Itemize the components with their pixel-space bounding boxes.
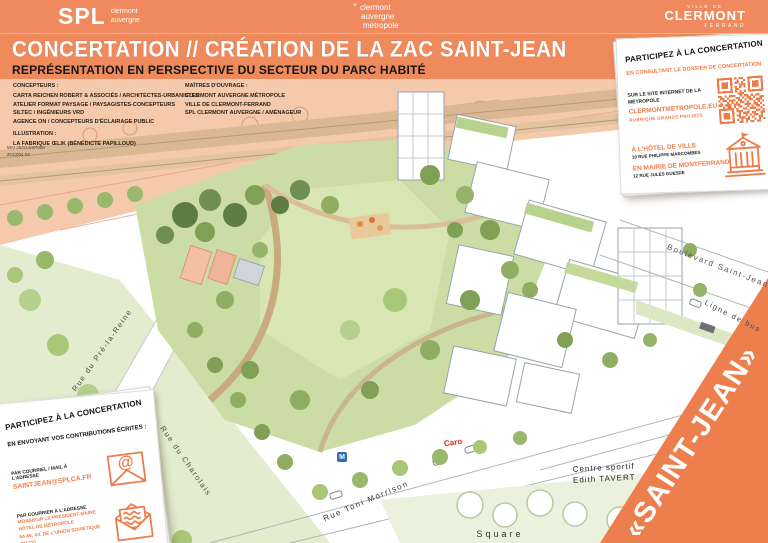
- poster: SPL clermont auvergne + clermont auvergn…: [0, 0, 768, 543]
- concepteur-line: CARTA REICHEN ROBERT & ASSOCIÉS / ARCHIT…: [13, 92, 199, 101]
- centre-sportif-label: Centre sportif Edith TAVERT: [572, 462, 636, 487]
- qr-code: [717, 75, 766, 124]
- ville-clermont-logo: VILLE DE CLERMONT FERRAND: [664, 4, 746, 29]
- maitre-line: SPL CLERMONT AUVERGNE / AMÉNAGEUR: [185, 109, 301, 118]
- spl-logo: SPL clermont auvergne: [58, 5, 140, 28]
- envelope-at-icon: @: [101, 441, 152, 491]
- spl-logo-text: SPL: [58, 5, 106, 28]
- maitres-title: MAÎTRES D'OUVRAGE :: [185, 83, 301, 89]
- panel-right-section-title: EN CONSULTANT LE DOSSIER DE CONCERTATION: [626, 61, 762, 76]
- maitre-line: CLERMONT AUVERGNE MÉTROPOLE: [185, 92, 301, 101]
- maitre-line: VILLE DE CLERMONT-FERRAND: [185, 101, 301, 110]
- concepteur-line: SILTEC / INGÉNIEURS VRD: [13, 109, 199, 118]
- participation-panel-right: PARTICIPEZ À LA CONCERTATION EN CONSULTA…: [613, 31, 768, 198]
- illustration-title: ILLUSTRATION :: [13, 131, 199, 137]
- participation-panel-left: PARTICIPEZ À LA CONCERTATION EN ENVOYANT…: [0, 386, 172, 543]
- concepteur-line: AGENCE ON / CONCEPTEURS D'ÉCLAIRAGE PUBL…: [13, 118, 199, 127]
- metropole-logo: + clermont auvergne métropole: [352, 4, 399, 30]
- concepteur-line: ATELIER FORMAT PAYSAGE / PAYSAGISTES-CON…: [13, 101, 199, 110]
- panel-right-title: PARTICIPEZ À LA CONCERTATION: [625, 39, 761, 65]
- town-hall-icon: [718, 129, 768, 180]
- metro-icon: M: [337, 452, 347, 462]
- plus-icon: +: [353, 2, 357, 10]
- concepteurs-title: CONCEPTEURS :: [13, 83, 199, 89]
- credits-maitres: MAÎTRES D'OUVRAGE : CLERMONT AUVERGNE MÉ…: [185, 83, 301, 118]
- svg-text:@: @: [117, 452, 135, 472]
- credits-concepteurs: CONCEPTEURS : CARTA REICHEN ROBERT & ASS…: [13, 83, 199, 149]
- square-label: Square: [476, 529, 523, 539]
- envelope-letter-icon: [108, 496, 159, 543]
- top-bar: SPL clermont auvergne + clermont auvergn…: [0, 0, 768, 34]
- doc-reference: MAI 25/024/SP008 ZAC004 03: [7, 145, 45, 159]
